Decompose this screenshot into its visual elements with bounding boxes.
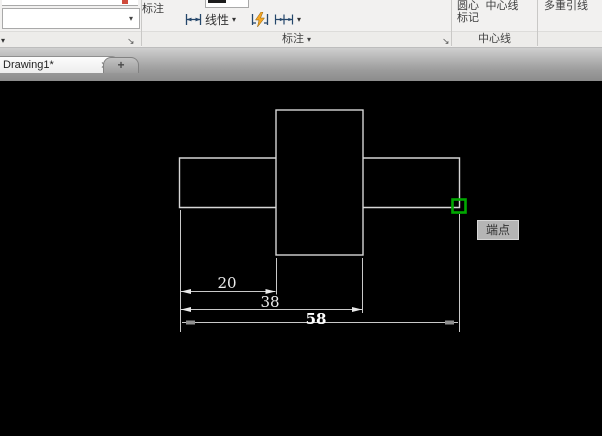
dim-text-20[interactable]: 20 <box>204 274 250 292</box>
continue-dimension-button[interactable]: ▾ <box>274 9 301 29</box>
multileader-button-label: 多重引线 <box>540 0 592 12</box>
text-style-color-mark <box>122 0 128 4</box>
combo-dropdown-icon[interactable]: ▾ <box>124 10 138 27</box>
linear-dropdown-icon[interactable]: ▾ <box>232 15 236 24</box>
linear-dimension-button[interactable]: 线性 ▾ <box>185 9 236 29</box>
linear-button-label: 线性 <box>205 11 229 28</box>
panel1-footer: ▾ ↘ <box>0 31 141 47</box>
file-tab-bar: Drawing1* × + <box>0 47 602 82</box>
osnap-tooltip-label: 端点 <box>486 223 510 237</box>
dim-style-preview-cutoff[interactable] <box>205 0 249 8</box>
center-mark-label-line2: 标记 <box>452 12 484 24</box>
multileader-button[interactable]: 多重引线 <box>540 0 592 12</box>
linear-dimension-icon <box>185 12 202 27</box>
center-mark-label-line1: 圆心 <box>452 0 484 12</box>
drawing-geometry <box>0 81 602 436</box>
continue-dropdown-icon[interactable]: ▾ <box>297 15 301 24</box>
dim-text-38[interactable]: 38 <box>247 293 293 311</box>
left-arm-outline[interactable] <box>180 158 277 208</box>
panel1-title-dropdown-icon[interactable]: ▾ <box>1 33 5 48</box>
centerline-button-label: 中心线 <box>484 0 520 12</box>
centerline-panel-title: 中心线 <box>478 33 511 45</box>
dim-38-arrow-left <box>181 307 191 312</box>
ribbon: ▾ ▾ ↘ 标注 线性 ▾ <box>0 0 602 47</box>
drawing-tab-label: Drawing1* <box>3 59 54 71</box>
dim-38-arrow-right <box>352 307 362 312</box>
dimension-panel-dropdown-icon: ▾ <box>307 35 311 44</box>
dim-58-grip-right[interactable] <box>445 321 454 325</box>
dimension-panel-footer[interactable]: 标注 ▾ ↘ <box>142 31 451 47</box>
continue-dimension-icon <box>274 13 294 26</box>
centerline-panel-footer[interactable]: 中心线 <box>452 31 537 47</box>
centerline-button[interactable]: 中心线 <box>484 0 520 12</box>
model-space-canvas[interactable]: 20 38 58 端点 <box>0 81 602 436</box>
multileader-panel-footer <box>538 31 602 47</box>
dim-20-arrow-left <box>181 289 191 294</box>
dim-style-preview-band <box>208 0 226 3</box>
autocad-window: ▾ ▾ ↘ 标注 线性 ▾ <box>0 0 602 436</box>
center-mark-button[interactable]: 圆心 标记 <box>452 0 484 24</box>
annotation-style-combobox[interactable]: ▾ <box>2 8 140 29</box>
new-tab-button[interactable]: + <box>103 57 139 73</box>
quick-dimension-button[interactable] <box>251 9 269 29</box>
osnap-tooltip: 端点 <box>477 220 519 240</box>
dimension-big-button-label[interactable]: 标注 <box>142 0 170 16</box>
right-arm-outline[interactable] <box>363 158 460 208</box>
drawing-tab[interactable]: Drawing1* × <box>0 56 118 73</box>
text-style-combo-cutoff[interactable] <box>2 0 138 6</box>
dimension-panel-title: 标注 <box>282 33 304 45</box>
center-rectangle[interactable] <box>276 110 363 255</box>
quick-dimension-icon <box>251 12 269 27</box>
dim-text-58[interactable]: 58 <box>293 310 339 328</box>
dim-58-grip-left[interactable] <box>186 321 195 325</box>
